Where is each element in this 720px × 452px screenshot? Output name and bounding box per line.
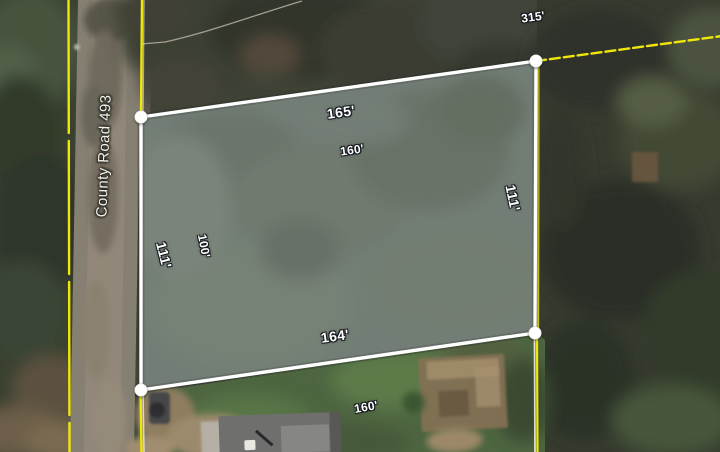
vertex-handle-southwest[interactable] xyxy=(135,384,148,397)
boundary-line-road-edge-lower xyxy=(141,390,142,452)
vertex-handle-northeast[interactable] xyxy=(530,55,543,68)
vertex-handle-southeast[interactable] xyxy=(529,327,542,340)
vertex-handle-northwest[interactable] xyxy=(135,111,148,124)
boundary-line-northeast xyxy=(536,36,720,61)
lot-line-south-of-parcel-east xyxy=(535,333,536,452)
parcel-polygon[interactable] xyxy=(141,61,536,390)
boundary-line-east-lower xyxy=(537,333,538,452)
parcel-overlay xyxy=(0,0,720,452)
boundary-line-road-edge-upper xyxy=(141,0,142,117)
lot-line-south-of-parcel-west xyxy=(143,390,144,452)
boundary-line-west xyxy=(69,0,70,452)
lot-line-north-of-parcel xyxy=(143,0,144,117)
aerial-map-view[interactable]: County Road 493 315' 165' 160' 111' 100'… xyxy=(0,0,720,452)
